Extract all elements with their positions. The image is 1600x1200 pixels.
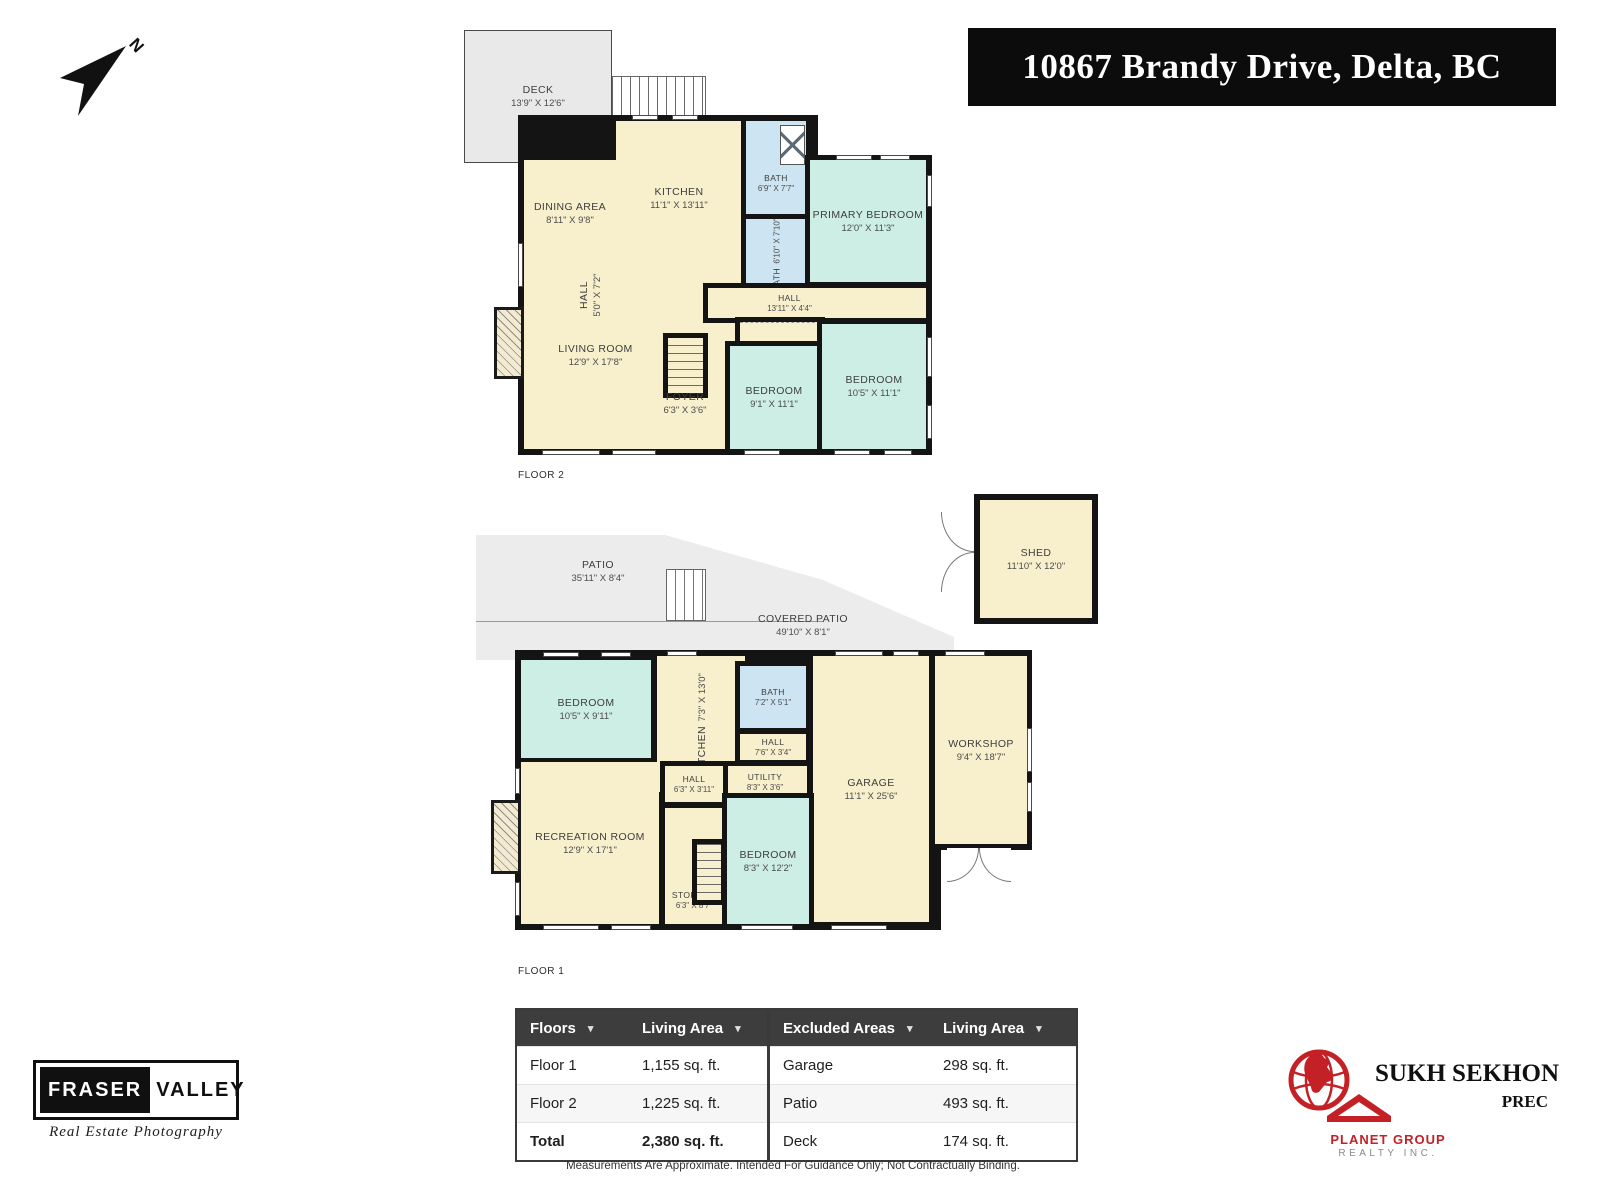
room-foyer-label: FOYER 6'3" X 3'6" <box>640 391 730 416</box>
room-kitchen-f2: KITCHEN 11'1" X 13'11" <box>616 121 742 275</box>
window <box>672 115 698 120</box>
chevron-down-icon: ▾ <box>588 1022 594 1035</box>
room-label: DECK <box>511 84 565 96</box>
table-row: Floor 1 1,155 sq. ft. <box>517 1046 767 1084</box>
shower-icon <box>780 125 805 165</box>
window <box>515 882 520 916</box>
fireplace-icon <box>491 800 521 874</box>
planet-group-text: PLANET GROUP <box>1318 1132 1458 1147</box>
window <box>611 925 651 930</box>
interior-stairs-f1 <box>697 844 721 900</box>
window <box>836 155 872 160</box>
window <box>927 405 932 439</box>
room-bath-lower-f2: BATH 6'10" X 7'10" <box>746 219 806 291</box>
north-label: N <box>125 34 147 56</box>
closet <box>740 322 820 344</box>
room-living-label: LIVING ROOM 12'9" X 17'8" <box>528 343 663 368</box>
room-dining-label: DINING AREA 8'11" X 9'8" <box>522 201 618 226</box>
window <box>1027 782 1032 812</box>
room-utility-f1: UTILITY 8'3" X 3'6" <box>723 766 807 798</box>
room-covered-patio-label: COVERED PATIO 49'10" X 8'1" <box>713 613 893 638</box>
room-shed: SHED 11'10" X 12'0" <box>974 494 1098 624</box>
room-garage: GARAGE 11'1" X 25'6" <box>813 656 929 922</box>
col-header-living-area[interactable]: Living Area▾ <box>629 1010 767 1046</box>
window <box>543 925 599 930</box>
room-bedroom-b-f1: BEDROOM 8'3" X 12'2" <box>727 798 809 924</box>
window <box>632 115 658 120</box>
floor1-caption: FLOOR 1 <box>518 966 564 977</box>
table-row: Deck 174 sq. ft. <box>770 1122 1076 1160</box>
table-row: Garage 298 sq. ft. <box>770 1046 1076 1084</box>
col-header-floors[interactable]: Floors▾ <box>517 1010 629 1046</box>
exterior-cut <box>818 115 932 155</box>
room-patio-label: PATIO 35'11" X 8'4" <box>528 559 668 584</box>
interior-stairs-f2 <box>668 338 703 393</box>
window <box>518 243 523 287</box>
table-row: Patio 493 sq. ft. <box>770 1084 1076 1122</box>
shed-door <box>941 512 974 552</box>
table-row: Floor 2 1,225 sq. ft. <box>517 1084 767 1122</box>
room-hall-small-label: HALL 5'0" X 7'2" <box>578 250 602 340</box>
realty-inc-text: REALTY INC. <box>1318 1148 1458 1159</box>
fraser-logo-right: VALLEY <box>150 1067 251 1113</box>
room-bedroom-b-f2: BEDROOM 10'5" X 11'1" <box>822 324 926 449</box>
address-text: 10867 Brandy Drive, Delta, BC <box>1022 47 1501 87</box>
window <box>515 768 520 794</box>
window <box>884 450 912 455</box>
fraser-valley-logo: FRASER VALLEY <box>33 1060 239 1120</box>
room-patio: PATIO 35'11" X 8'4" COVERED PATIO 49'10"… <box>468 527 962 660</box>
agent-name: SUKH SEKHON <box>1372 1060 1562 1088</box>
window <box>831 925 887 930</box>
room-primary-bedroom: PRIMARY BEDROOM 12'0" X 11'3" <box>810 160 926 282</box>
window <box>744 450 780 455</box>
patio-stairs <box>666 569 706 621</box>
window <box>543 652 579 657</box>
window <box>741 925 793 930</box>
room-hall-a-f1: HALL 7'6" X 3'4" <box>740 734 806 760</box>
excluded-group: Excluded Areas▾ Living Area▾ Garage 298 … <box>767 1010 1076 1160</box>
fraser-logo-left: FRASER <box>40 1067 150 1113</box>
shed-door <box>941 552 974 592</box>
chevron-down-icon: ▾ <box>907 1022 913 1035</box>
floorplan-page: N 10867 Brandy Drive, Delta, BC DECK 13'… <box>0 0 1600 1200</box>
window <box>927 175 932 207</box>
window <box>601 652 631 657</box>
floor2-caption: FLOOR 2 <box>518 470 564 481</box>
col-header-excluded-areas[interactable]: Excluded Areas▾ <box>770 1010 930 1046</box>
disclaimer-text: Measurements Are Approximate. Intended F… <box>515 1160 1071 1172</box>
room-hall-f2: HALL 13'11" X 4'4" <box>708 288 926 318</box>
window <box>834 450 870 455</box>
chevron-down-icon: ▾ <box>735 1022 741 1035</box>
north-arrow-icon: N <box>48 28 148 118</box>
col-header-living-area-2[interactable]: Living Area▾ <box>930 1010 1076 1046</box>
floor2-plan: KITCHEN 11'1" X 13'11" BATH 6'9" X 7'7" … <box>518 115 932 455</box>
fraser-tagline: Real Estate Photography <box>33 1124 239 1141</box>
area-summary-table: Floors▾ Living Area▾ Floor 1 1,155 sq. f… <box>515 1008 1078 1162</box>
window <box>612 450 656 455</box>
window <box>945 651 985 656</box>
address-banner: 10867 Brandy Drive, Delta, BC <box>968 28 1556 106</box>
room-bath-f1: BATH 7'2" X 5'1" <box>740 666 806 728</box>
room-hall-b-f1: HALL 6'3" X 3'11" <box>665 766 723 802</box>
floor1-plan: BEDROOM 10'5" X 9'11" KITCHEN 7'3" X 13'… <box>515 650 1032 930</box>
room-dims: 13'9" X 12'6" <box>511 98 565 109</box>
floors-group: Floors▾ Living Area▾ Floor 1 1,155 sq. f… <box>517 1010 767 1160</box>
window <box>835 651 883 656</box>
room-recreation: RECREATION ROOM 12'9" X 17'1" <box>521 762 659 924</box>
exterior-stairs <box>612 76 706 116</box>
window <box>893 651 919 656</box>
window <box>880 155 910 160</box>
table-row-total: Total 2,380 sq. ft. <box>517 1122 767 1160</box>
window <box>542 450 600 455</box>
window <box>667 651 697 656</box>
room-bedroom-a-f2: BEDROOM 9'1" X 11'1" <box>730 346 818 449</box>
window <box>1027 728 1032 772</box>
window <box>927 337 932 377</box>
fireplace-icon <box>494 307 524 379</box>
agent-designation: PREC <box>1372 1092 1548 1112</box>
chevron-down-icon: ▾ <box>1036 1022 1042 1035</box>
room-workshop: WORKSHOP 9'4" X 18'7" <box>935 656 1027 844</box>
room-bedroom-a-f1: BEDROOM 10'5" X 9'11" <box>521 660 651 758</box>
